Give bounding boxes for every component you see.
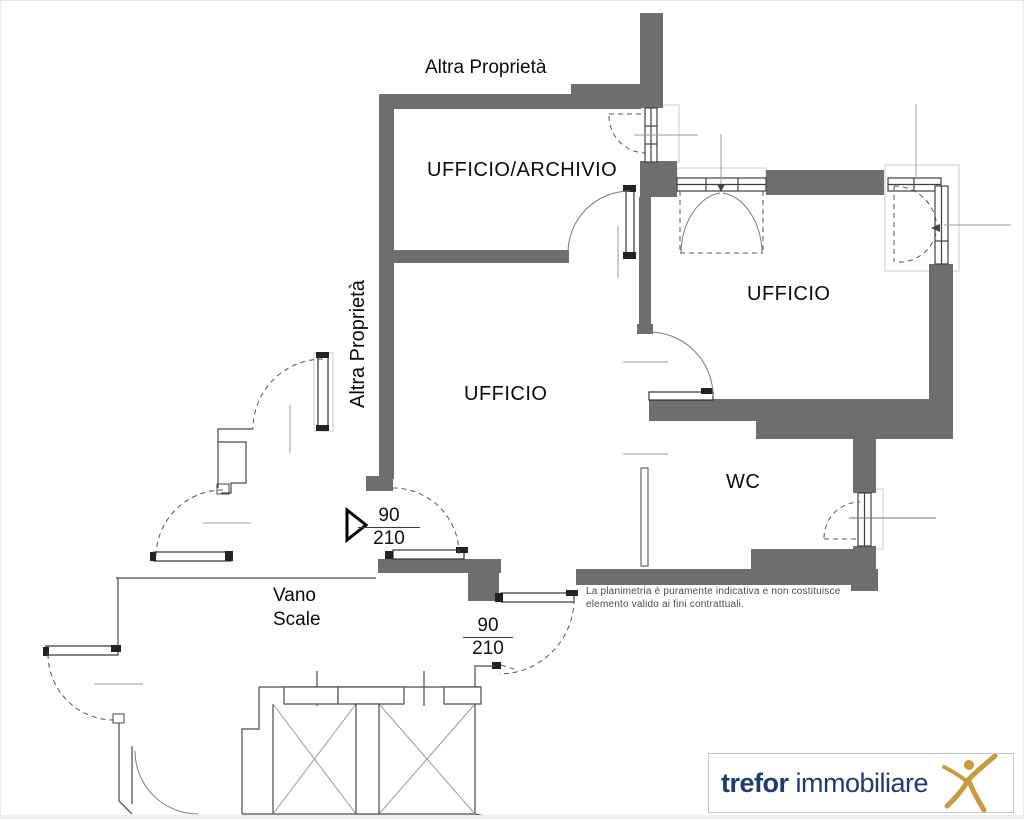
door-size-label-2: 90 210 (463, 616, 513, 659)
disclaimer-text: La planimetria è puramente indicativa e … (586, 585, 840, 611)
elevator-shafts (273, 687, 481, 814)
window-top-right (888, 178, 941, 191)
page-edge-strip (1, 815, 1024, 819)
window-wc (858, 493, 871, 546)
disclaimer-line1: La planimetria è puramente indicativa e … (586, 585, 840, 598)
stairwell-label-line2: Scale (273, 608, 321, 632)
door-leaf-stair-left (46, 646, 118, 655)
door-leaf-stair-mid (154, 552, 231, 561)
door-leaf-entrance-2 (501, 593, 574, 602)
room-label-office-archive: UFFICIO/ARCHIVIO (427, 159, 617, 182)
door-size-2-width: 90 (463, 616, 513, 638)
door-size-1-height: 210 (358, 528, 420, 549)
floor-plan-page: Altra Proprietà Altra Proprietà UFFICIO/… (0, 0, 1024, 819)
agency-logo-bold: trefor (721, 768, 789, 798)
door-leaf-stair-upper (318, 357, 328, 427)
door-size-1-width: 90 (358, 506, 420, 528)
floor-plan-drawing (1, 1, 1024, 819)
logo-person-icon (917, 754, 1007, 814)
room-label-office-center: UFFICIO (464, 383, 548, 406)
room-label-office-right: UFFICIO (747, 283, 831, 306)
stairwell-label: Vano Scale (273, 584, 321, 632)
other-property-top-label: Altra Proprietà (425, 57, 546, 79)
disclaimer-line2: elemento valido ai fini contrattuali. (586, 598, 840, 611)
door-size-label-1: 90 210 (358, 506, 420, 549)
door-swing-arcs-solid (135, 191, 762, 814)
other-property-side-label: Altra Proprietà (347, 244, 373, 444)
door-size-2-height: 210 (463, 638, 513, 659)
agency-logo-light: immobiliare (796, 768, 929, 798)
door-leaf-entrance-1 (393, 550, 464, 559)
agency-logo: treforimmobiliare (708, 753, 1014, 813)
hinge-plates (113, 484, 229, 723)
room-label-wc: WC (726, 471, 760, 494)
thin-partition (641, 468, 648, 566)
stairwell-label-line1: Vano (273, 584, 321, 608)
agency-logo-text: treforimmobiliare (721, 768, 928, 799)
door-leaf-archive (626, 191, 634, 253)
